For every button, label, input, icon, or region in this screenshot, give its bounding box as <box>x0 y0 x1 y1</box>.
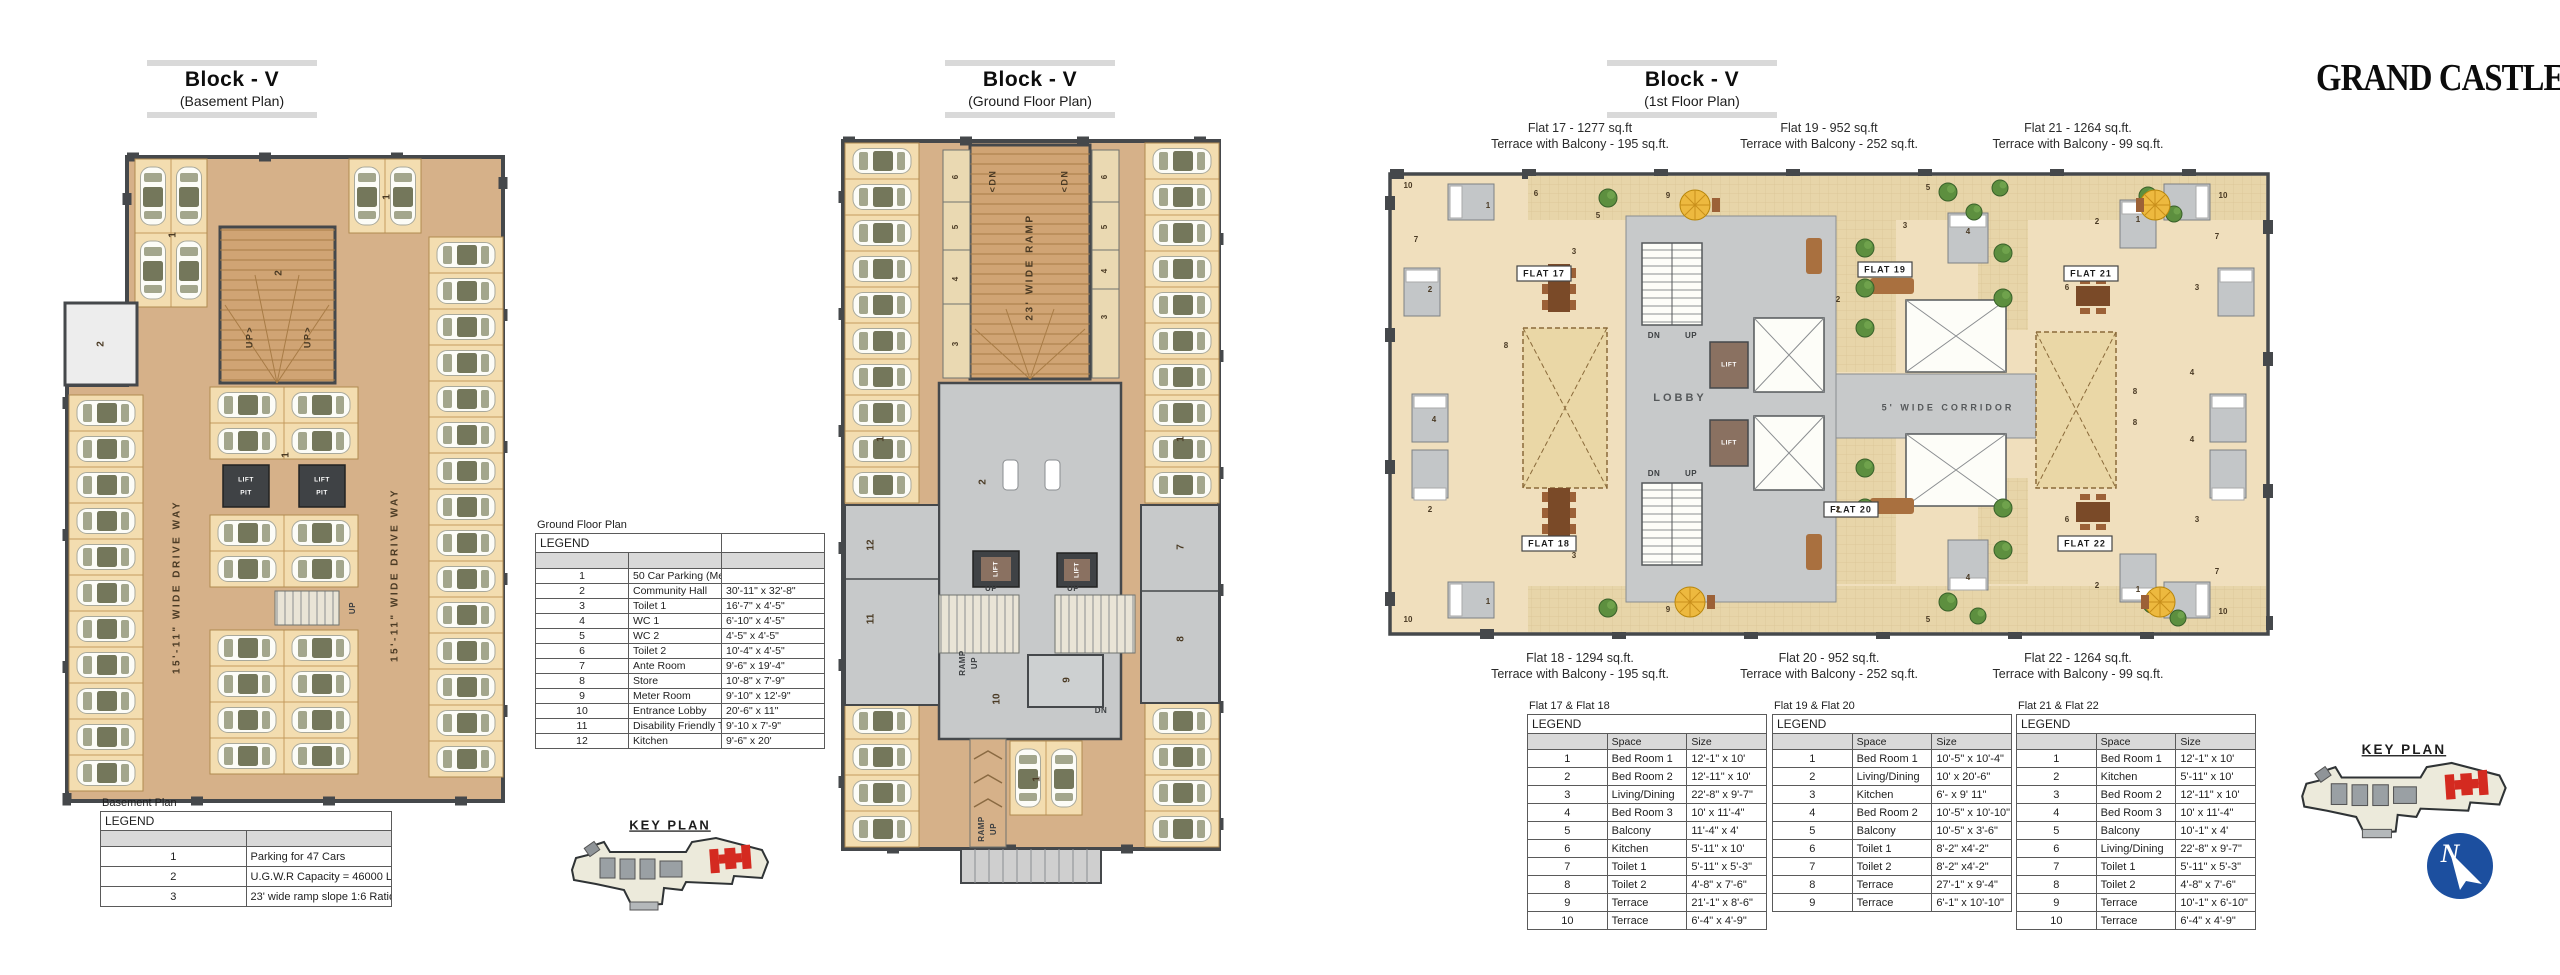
legend-row: 5 Balcony 10'-5" x 3'-6" <box>1773 822 2012 840</box>
space-column-header: Space <box>1607 734 1687 750</box>
room-number: 4 <box>951 276 960 281</box>
svg-text:6: 6 <box>2065 283 2070 292</box>
bed <box>1948 213 1988 263</box>
flat-area-annotation: Flat 22 - 1264 sq.ft. Terrace with Balco… <box>1948 650 2208 682</box>
legend-row: 11 Disability Friendly Toilet 9'-10 x 7'… <box>536 719 825 734</box>
legend-row: 2 Kitchen 5'-11" x 10' <box>2017 768 2256 786</box>
room-number: 4 <box>1100 268 1109 273</box>
legend-row: 3 Kitchen 6'- x 9' 11" <box>1773 786 2012 804</box>
tree-icon <box>1856 279 1874 297</box>
wide-ramp-label: 23' WIDE RAMP <box>1025 213 1036 320</box>
tree-icon <box>1599 189 1617 207</box>
flat-area-annotation: Flat 19 - 952 sq.ft Terrace with Balcony… <box>1699 120 1959 152</box>
size-column-header: Size <box>1932 734 2012 750</box>
blank-header-cell <box>536 553 629 569</box>
legend-row: 1 Bed Room 1 10'-5" x 10'-4" <box>1773 750 2012 768</box>
svg-text:2: 2 <box>2095 217 2100 226</box>
bed <box>2210 394 2246 442</box>
legend-row: 5 Balcony 11'-4" x 4' <box>1528 822 1767 840</box>
flat-area-annotation: Flat 17 - 1277 sq.ft Terrace with Balcon… <box>1450 120 1710 152</box>
dining-table <box>1542 488 1576 536</box>
svg-text:2: 2 <box>1836 505 1841 514</box>
ugwr-room: 2 <box>65 303 137 385</box>
floorplan-sheet: Block - V (Basement Plan) Block - V (Gro… <box>0 0 2560 975</box>
room-number: 10 <box>992 693 1003 705</box>
title-bar-top <box>147 60 317 66</box>
flat-area-annotation: Flat 18 - 1294 sq.ft. Terrace with Balco… <box>1450 650 1710 682</box>
blank-header-cell <box>722 534 825 553</box>
room-number: 11 <box>866 613 877 624</box>
legend-row: 1 Parking for 47 Cars <box>101 847 392 867</box>
blank-header-cell <box>1773 734 1853 750</box>
tree-icon <box>1994 244 2012 262</box>
site-blocks <box>2331 784 2416 806</box>
flat-21-22-legend: Flat 21 & Flat 22 LEGEND SpaceSize 1 Bed… <box>2016 700 2256 930</box>
blank-header-cell <box>2017 734 2097 750</box>
drive-way-label: 15'-11" WIDE DRIVE WAY <box>172 500 183 674</box>
svg-text:4: 4 <box>2190 435 2195 444</box>
legend-row: 9 Meter Room 9'-10" x 12'-9" <box>536 689 825 704</box>
legend-row: 7 Toilet 1 5'-11" x 5'-3" <box>2017 858 2256 876</box>
svg-text:2: 2 <box>1428 505 1433 514</box>
room-number: 5 <box>1100 224 1109 229</box>
tree-icon <box>1994 541 2012 559</box>
flat-22-tag: FLAT 22 <box>2058 536 2112 551</box>
ramp-up-arrow-label: UP> <box>244 326 254 348</box>
legend-row: 6 Toilet 2 10'-4" x 4'-5" <box>536 644 825 659</box>
bottom-ramp: RAMP UP <box>970 739 1006 847</box>
tree-icon <box>1994 499 2012 517</box>
svg-text:1: 1 <box>2136 215 2141 224</box>
tree-icon <box>1856 319 1874 337</box>
legend-header: LEGEND <box>1528 715 1767 734</box>
corridor-label: 5' WIDE CORRIDOR <box>1882 402 2015 412</box>
lift-pit-left: LIFT PIT <box>223 465 269 507</box>
legend-header: LEGEND <box>536 534 722 553</box>
svg-text:FLAT 17: FLAT 17 <box>1523 268 1565 278</box>
bed <box>1412 450 1448 500</box>
flat-19-tag: FLAT 19 <box>1858 262 1912 277</box>
legend-row: 1 Bed Room 1 12'-1" x 10' <box>2017 750 2256 768</box>
legend-row: 3 Toilet 1 16'-7" x 4'-5" <box>536 599 825 614</box>
ground-ramp: <DN <DN 23' WIDE RAMP <box>970 145 1090 379</box>
legend-row: 10 Entrance Lobby 20'-6" x 11" <box>536 704 825 719</box>
lift-label: LIFT <box>993 561 1000 577</box>
key-plan-title: KEY PLAN <box>2362 742 2447 757</box>
flat-table-caption: Flat 17 & Flat 18 <box>1529 700 1767 712</box>
legend-row: 2 U.G.W.R Capacity = 46000 LTRS <box>101 867 392 887</box>
rooms-7-8: 7 8 <box>1141 505 1219 703</box>
ramp-number: 2 <box>274 270 285 276</box>
blank-header-cell <box>246 831 392 847</box>
legend-row: 5 Balcony 10'-1" x 4' <box>2017 822 2256 840</box>
basement-legend: Basement Plan LEGEND 1 Parking for 47 Ca… <box>100 797 392 907</box>
basement-title-block: Block - V (Basement Plan) <box>147 60 317 118</box>
tree-icon <box>1599 599 1617 617</box>
svg-text:4: 4 <box>1432 415 1437 424</box>
service-rooms-left: 6 5 4 3 <box>943 150 970 378</box>
svg-text:8: 8 <box>2133 387 2138 396</box>
title-bar-bottom <box>1607 112 1777 118</box>
svg-text:3: 3 <box>2195 515 2200 524</box>
stall-group-number: 1 <box>1176 436 1187 442</box>
hall-number: 2 <box>978 479 989 485</box>
svg-text:5: 5 <box>1926 615 1931 624</box>
svg-text:7: 7 <box>2215 567 2220 576</box>
stall-group-number: 1 <box>281 452 292 458</box>
legend-row: 10 Terrace 6'-4" x 4'-9" <box>1528 912 1767 930</box>
legend-header: LEGEND <box>101 812 392 831</box>
up-label: UP <box>989 823 998 835</box>
brand-logo: GRAND CASTLE <box>2316 56 2538 100</box>
ramp-dn-label: <DN <box>1059 170 1069 193</box>
room-number: 7 <box>1176 544 1187 550</box>
legend-row: 1 50 Car Parking (Mechanical) <box>536 569 825 584</box>
legend-row: 4 Bed Room 3 10' x 11'-4" <box>2017 804 2256 822</box>
svg-text:8: 8 <box>2133 418 2138 427</box>
tree-icon <box>1939 183 1957 201</box>
stairs-up-label: UP <box>985 584 997 593</box>
flat-area-annotation: Flat 20 - 952 sq.ft. Terrace with Balcon… <box>1699 650 1959 682</box>
ground-title-block: Block - V (Ground Floor Plan) <box>945 60 1115 118</box>
svg-text:10: 10 <box>2219 191 2228 200</box>
svg-text:7: 7 <box>2215 232 2220 241</box>
legend-row: 9 Terrace 21'-1" x 8'-6" <box>1528 894 1767 912</box>
ground-floor-legend: Ground Floor Plan LEGEND 1 50 Car Parkin… <box>535 519 825 749</box>
stairwell-top: DN UP <box>1642 243 1702 340</box>
room-number: 8 <box>1176 636 1187 642</box>
room-number: 12 <box>866 539 877 551</box>
legend-row: 9 Terrace 6'-1" x 10'-10" <box>1773 894 2012 912</box>
legend-header: LEGEND <box>1773 715 2012 734</box>
tree-icon <box>1939 593 1957 611</box>
rooms-12-11: 12 11 <box>845 505 939 705</box>
first-floor-subtitle: (1st Floor Plan) <box>1644 94 1740 109</box>
pit-label: PIT <box>240 490 252 497</box>
first-floor-title-block: Block - V (1st Floor Plan) <box>1607 60 1777 118</box>
svg-text:5: 5 <box>1926 183 1931 192</box>
space-column-header: Space <box>2096 734 2176 750</box>
stall-group-number: 1 <box>1032 776 1043 782</box>
first-floor-bottom-annotations: Flat 18 - 1294 sq.ft. Terrace with Balco… <box>1388 650 2270 690</box>
stall-group-number: 1 <box>382 194 393 200</box>
ramp-label: RAMP <box>958 650 967 676</box>
svg-text:FLAT 21: FLAT 21 <box>2070 268 2112 278</box>
svg-text:10: 10 <box>2219 607 2228 616</box>
legend-row: 6 Toilet 1 8'-2" x4'-2" <box>1773 840 2012 858</box>
first-floor-title: Block - V <box>1645 69 1739 91</box>
flat-table-caption: Flat 19 & Flat 20 <box>1774 700 2012 712</box>
svg-text:3: 3 <box>1572 247 1577 256</box>
legend-row: 5 WC 2 4'-5" x 4'-5" <box>536 629 825 644</box>
basement-title: Block - V <box>185 69 279 91</box>
lift-top: LIFT <box>1710 342 1748 388</box>
ground-plan-drawing: <DN <DN 23' WIDE RAMP 6 5 4 3 6 5 4 3 2 <box>841 139 1221 887</box>
room-number: 3 <box>1100 314 1109 319</box>
dn-label: DN <box>1648 331 1661 340</box>
size-column-header: Size <box>1687 734 1767 750</box>
lobby-label: LOBBY <box>1653 392 1707 404</box>
svg-text:3: 3 <box>1572 551 1577 560</box>
basement-legend-caption: Basement Plan <box>102 797 392 809</box>
legend-row: 3 Living/Dining 22'-8" x 9'-7" <box>1528 786 1767 804</box>
flat-20-tag: FLAT 20 <box>1824 502 1878 517</box>
svg-text:6: 6 <box>1534 189 1539 198</box>
first-floor-plan-drawing: LOBBY 5' WIDE CORRIDOR DN UP DN UP LIFT … <box>1388 158 2270 650</box>
stall-group-number: 1 <box>168 232 179 238</box>
legend-row: 3 23' wide ramp slope 1:6 Ratio <box>101 887 392 907</box>
room-number: 9 <box>1062 677 1073 683</box>
north-compass: N <box>2424 830 2496 902</box>
room-number: 6 <box>1100 174 1109 179</box>
stairs-up-label: UP <box>348 602 357 614</box>
legend-row: 2 Living/Dining 10' x 20'-6" <box>1773 768 2012 786</box>
svg-text:4: 4 <box>2190 368 2195 377</box>
legend-row: 8 Terrace 27'-1" x 9'-4" <box>1773 876 2012 894</box>
lift-label: LIFT <box>1721 440 1737 447</box>
bed <box>1948 540 1988 590</box>
legend-row: 6 Living/Dining 22'-8" x 9'-7" <box>2017 840 2256 858</box>
pit-label: PIT <box>316 490 328 497</box>
ugwr-number: 2 <box>96 341 107 347</box>
ramp-label: RAMP <box>977 816 986 842</box>
legend-row: 12 Kitchen 9'-6" x 20' <box>536 734 825 749</box>
legend-row: 7 Toilet 1 5'-11" x 5'-3" <box>1528 858 1767 876</box>
site-entry-steps <box>630 902 658 910</box>
key-plan-title: KEY PLAN <box>629 817 711 832</box>
room-number: 5 <box>951 224 960 229</box>
service-rooms-right: 6 5 4 3 <box>1092 150 1119 378</box>
title-bar-bottom <box>945 112 1115 118</box>
entrance-steps <box>961 849 1101 883</box>
up-label: UP <box>1685 331 1697 340</box>
tree-icon <box>1856 239 1874 257</box>
svg-text:9: 9 <box>1666 605 1671 614</box>
tree-icon <box>1856 459 1874 477</box>
site-blocks <box>600 858 682 879</box>
blank-header-cell <box>722 553 825 569</box>
svg-text:6: 6 <box>2065 515 2070 524</box>
tree-icon <box>1994 289 2012 307</box>
basement-subtitle: (Basement Plan) <box>180 94 284 109</box>
tree-icon <box>1966 204 1982 220</box>
ground-title: Block - V <box>983 69 1077 91</box>
svg-text:4: 4 <box>1966 573 1971 582</box>
svg-text:FLAT 18: FLAT 18 <box>1528 538 1570 548</box>
room-number: 6 <box>951 174 960 179</box>
tree-icon <box>1970 608 1986 624</box>
basement-plan-drawing: UP> UP> 2 2 LIFT PIT LIFT PIT UP 15'-11"… <box>65 155 505 803</box>
flat-17-tag: FLAT 17 <box>1517 266 1571 281</box>
title-bar-top <box>1607 60 1777 66</box>
blank-header-cell <box>629 553 722 569</box>
stairs-up-label: UP <box>1067 584 1079 593</box>
legend-row: 10 Terrace 6'-4" x 4'-9" <box>2017 912 2256 930</box>
legend-row: 1 Bed Room 1 12'-1" x 10' <box>1528 750 1767 768</box>
svg-text:4: 4 <box>1966 227 1971 236</box>
bed <box>1404 268 1440 316</box>
svg-text:FLAT 22: FLAT 22 <box>2064 538 2106 548</box>
legend-row: 4 WC 1 6'-10" x 4'-5" <box>536 614 825 629</box>
up-label: UP <box>1685 469 1697 478</box>
ground-lift-right: LIFT <box>1057 553 1097 587</box>
stairwell-bottom: DN UP <box>1642 469 1702 565</box>
svg-text:1: 1 <box>1486 201 1491 210</box>
lift-pit-right: LIFT PIT <box>299 465 345 507</box>
lift-label: LIFT <box>1721 362 1737 369</box>
first-floor-top-annotations: Flat 17 - 1277 sq.ft Terrace with Balcon… <box>1388 120 2270 160</box>
svg-text:2: 2 <box>1836 295 1841 304</box>
space-column-header: Space <box>1852 734 1932 750</box>
meter-room: 9 <box>1028 655 1103 707</box>
lift-label: LIFT <box>238 477 254 484</box>
svg-text:FLAT 19: FLAT 19 <box>1864 264 1906 274</box>
svg-text:2: 2 <box>1428 285 1433 294</box>
svg-text:1: 1 <box>2136 585 2141 594</box>
legend-row: 4 Bed Room 3 10' x 11'-4" <box>1528 804 1767 822</box>
legend-row: 2 Community Hall 30'-11" x 32'-8" <box>536 584 825 599</box>
legend-row: 8 Store 10'-8" x 7'-9" <box>536 674 825 689</box>
lift-bottom: LIFT <box>1710 420 1748 466</box>
bed <box>2218 268 2254 316</box>
bed <box>1412 394 1448 442</box>
legend-row: 6 Kitchen 5'-11" x 10' <box>1528 840 1767 858</box>
site-entry-steps <box>2362 829 2391 837</box>
flat-area-annotation: Flat 21 - 1264 sq.ft. Terrace with Balco… <box>1948 120 2208 152</box>
up-label: UP <box>970 657 979 669</box>
legend-row: 9 Terrace 10'-1" x 6'-10" <box>2017 894 2256 912</box>
svg-text:1: 1 <box>1486 597 1491 606</box>
svg-text:3: 3 <box>2195 283 2200 292</box>
ground-subtitle: (Ground Floor Plan) <box>968 94 1092 109</box>
ground-legend-caption: Ground Floor Plan <box>537 519 825 531</box>
basement-ramp: UP> UP> 2 <box>220 227 335 383</box>
bed <box>2210 450 2246 500</box>
ground-lift-left: LIFT <box>973 551 1019 587</box>
svg-text:9: 9 <box>1666 191 1671 200</box>
svg-text:10: 10 <box>1404 181 1413 190</box>
legend-row: 2 Bed Room 2 12'-11" x 10' <box>1528 768 1767 786</box>
flat-18-tag: FLAT 18 <box>1522 536 1576 551</box>
lift-label: LIFT <box>314 477 330 484</box>
blank-header-cell <box>1528 734 1608 750</box>
drive-way-label: 15'-11" WIDE DRIVE WAY <box>390 488 401 662</box>
title-bar-top <box>945 60 1115 66</box>
blank-header-cell <box>101 831 247 847</box>
legend-row: 8 Toilet 2 4'-8" x 7'-6" <box>1528 876 1767 894</box>
legend-header: LEGEND <box>2017 715 2256 734</box>
ramp-dn-label: <DN <box>987 170 997 193</box>
key-plan-center: KEY PLAN <box>566 812 778 918</box>
stall-group-number: 1 <box>876 436 887 442</box>
tree-icon <box>2170 610 2186 626</box>
legend-row: 3 Bed Room 2 12'-11" x 10' <box>2017 786 2256 804</box>
title-bar-bottom <box>147 112 317 118</box>
svg-text:10: 10 <box>1404 615 1413 624</box>
dn-label: DN <box>1648 469 1661 478</box>
legend-row: 7 Ante Room 9'-6" x 19'-4" <box>536 659 825 674</box>
svg-text:3: 3 <box>1903 221 1908 230</box>
svg-text:8: 8 <box>1504 341 1509 350</box>
flat-19-20-legend: Flat 19 & Flat 20 LEGEND SpaceSize 1 Bed… <box>1772 700 2012 912</box>
svg-text:7: 7 <box>1414 235 1419 244</box>
svg-text:5: 5 <box>1596 211 1601 220</box>
legend-row: 4 Bed Room 2 10'-5" x 10'-10" <box>1773 804 2012 822</box>
ramp-up-arrow-label: UP> <box>302 326 312 348</box>
lift-label: LIFT <box>1074 562 1081 578</box>
legend-row: 7 Toilet 2 8'-2" x4'-2" <box>1773 858 2012 876</box>
tree-icon <box>1992 180 2008 196</box>
flat-table-caption: Flat 21 & Flat 22 <box>2018 700 2256 712</box>
room-number: 3 <box>951 341 960 346</box>
flat-21-tag: FLAT 21 <box>2064 266 2118 281</box>
size-column-header: Size <box>2176 734 2256 750</box>
flat-17-18-legend: Flat 17 & Flat 18 LEGEND SpaceSize 1 Bed… <box>1527 700 1767 930</box>
legend-row: 8 Toilet 2 4'-8" x 7'-6" <box>2017 876 2256 894</box>
svg-text:2: 2 <box>2095 581 2100 590</box>
